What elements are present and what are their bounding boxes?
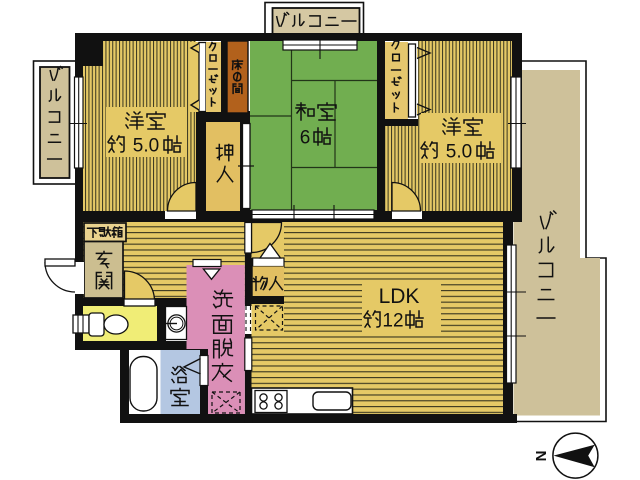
svg-text:LDK: LDK <box>379 285 420 308</box>
svg-text:5.0: 5.0 <box>446 142 472 163</box>
svg-text:12: 12 <box>382 311 403 332</box>
svg-text:N: N <box>533 451 550 462</box>
svg-text:5.0: 5.0 <box>133 136 159 157</box>
svg-text:6: 6 <box>300 128 311 149</box>
